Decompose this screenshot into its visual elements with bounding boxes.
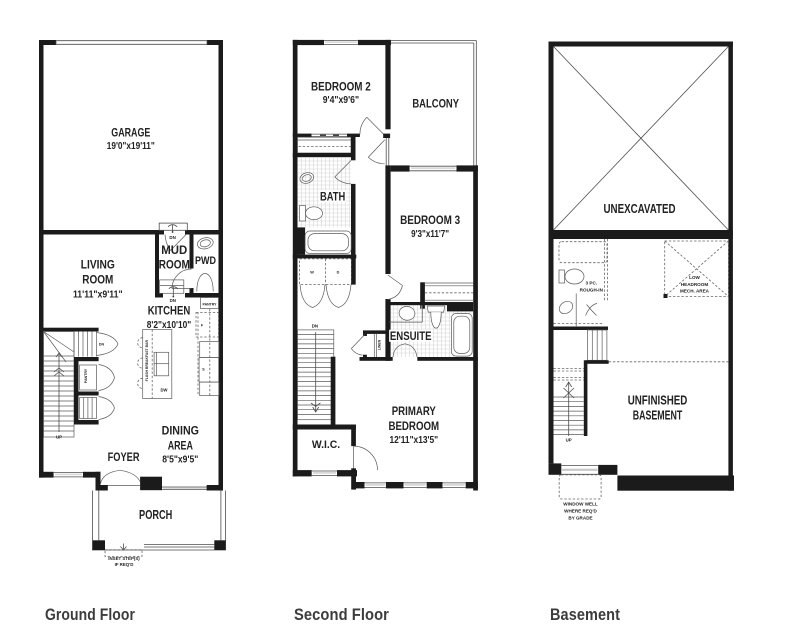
svg-text:3 PC.: 3 PC. xyxy=(586,281,598,286)
svg-text:HEADROOM: HEADROOM xyxy=(681,282,708,287)
svg-text:FOYER: FOYER xyxy=(108,450,140,464)
svg-text:S: S xyxy=(202,368,205,372)
svg-text:BY GRADE: BY GRADE xyxy=(568,516,592,521)
svg-text:BEDROOM 2: BEDROOM 2 xyxy=(311,79,371,93)
svg-text:UP: UP xyxy=(566,438,572,443)
svg-text:9'4"x9'6": 9'4"x9'6" xyxy=(323,95,360,106)
svg-text:BATH: BATH xyxy=(320,190,345,204)
svg-text:PRIMARY: PRIMARY xyxy=(392,404,436,418)
svg-text:PANTRY: PANTRY xyxy=(203,302,217,306)
svg-text:11'11"x9'11": 11'11"x9'11" xyxy=(73,290,123,301)
svg-text:BASEMENT: BASEMENT xyxy=(633,408,683,422)
svg-text:PORCH: PORCH xyxy=(139,507,172,522)
svg-text:MECH. AREA: MECH. AREA xyxy=(680,288,710,293)
svg-text:DN: DN xyxy=(169,235,175,240)
svg-text:LINEN: LINEN xyxy=(378,339,382,350)
svg-text:UP: UP xyxy=(56,435,62,440)
svg-text:WINDOW WELL: WINDOW WELL xyxy=(563,502,598,507)
svg-text:BEDROOM: BEDROOM xyxy=(388,419,439,433)
svg-text:PWD: PWD xyxy=(195,255,216,267)
svg-text:KITCHEN: KITCHEN xyxy=(148,304,191,318)
svg-text:D: D xyxy=(337,271,340,275)
svg-text:INSET STEP(S): INSET STEP(S) xyxy=(108,556,140,561)
svg-text:DN: DN xyxy=(99,343,105,347)
svg-text:PANTRY: PANTRY xyxy=(84,368,88,383)
svg-text:Basement: Basement xyxy=(550,606,620,624)
svg-text:ENSUITE: ENSUITE xyxy=(390,329,432,343)
svg-text:W: W xyxy=(310,271,314,275)
svg-text:UNFINISHED: UNFINISHED xyxy=(628,394,688,408)
svg-text:BEDROOM 3: BEDROOM 3 xyxy=(400,213,460,227)
svg-text:LIVING: LIVING xyxy=(81,257,115,271)
svg-text:9'3"x11'7": 9'3"x11'7" xyxy=(411,229,449,240)
svg-text:IF REQ'D: IF REQ'D xyxy=(115,562,134,567)
svg-text:LOW: LOW xyxy=(689,275,700,280)
svg-text:F: F xyxy=(201,324,204,328)
svg-text:Second Floor: Second Floor xyxy=(294,606,389,624)
svg-text:W.I.C.: W.I.C. xyxy=(312,439,340,451)
svg-text:DW: DW xyxy=(161,388,168,393)
svg-text:DN: DN xyxy=(170,298,176,303)
svg-text:12'11"x13'5": 12'11"x13'5" xyxy=(389,435,438,446)
svg-text:DINING: DINING xyxy=(162,424,199,438)
svg-text:AREA: AREA xyxy=(168,439,193,453)
svg-text:8'2"x10'10": 8'2"x10'10" xyxy=(147,320,192,331)
svg-text:FLUSH BREAKFAST BAR: FLUSH BREAKFAST BAR xyxy=(145,340,149,382)
svg-text:DN: DN xyxy=(312,324,318,329)
svg-text:Ground Floor: Ground Floor xyxy=(45,606,135,624)
svg-text:MUD: MUD xyxy=(161,245,187,257)
svg-text:GARAGE: GARAGE xyxy=(111,126,150,140)
svg-text:UNEXCAVATED: UNEXCAVATED xyxy=(604,202,676,216)
svg-text:8'5"x9'5": 8'5"x9'5" xyxy=(162,455,198,466)
svg-text:ROUGH-IN: ROUGH-IN xyxy=(580,288,604,293)
svg-text:WHERE REQ'D: WHERE REQ'D xyxy=(564,509,597,514)
svg-text:ROOM: ROOM xyxy=(82,273,113,287)
svg-text:BALCONY: BALCONY xyxy=(412,96,459,110)
svg-text:ROOM: ROOM xyxy=(159,260,190,272)
svg-text:19'0"x19'11": 19'0"x19'11" xyxy=(107,141,155,152)
